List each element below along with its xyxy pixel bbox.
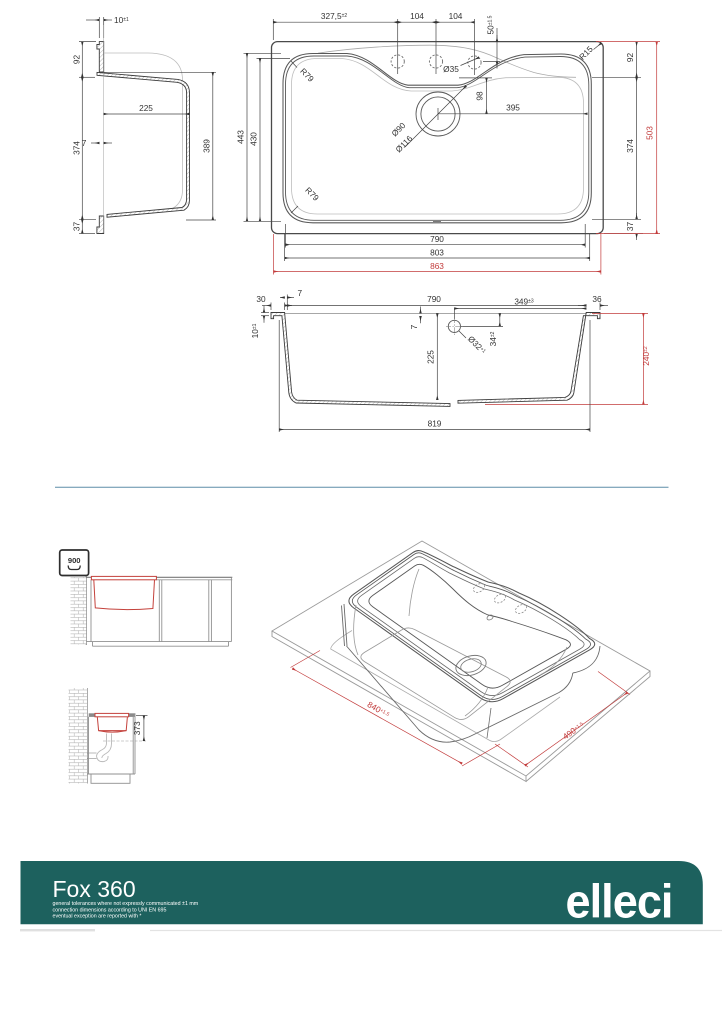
svg-text:37: 37 — [625, 222, 635, 232]
svg-text:503: 503 — [645, 126, 655, 140]
svg-text:443: 443 — [236, 130, 246, 144]
svg-text:225: 225 — [139, 103, 153, 113]
svg-text:373: 373 — [132, 721, 142, 735]
svg-text:7: 7 — [82, 138, 87, 148]
svg-text:790: 790 — [427, 294, 441, 304]
svg-text:36: 36 — [592, 294, 602, 304]
svg-text:92: 92 — [625, 53, 635, 63]
svg-text:104: 104 — [410, 11, 424, 21]
svg-text:790: 790 — [430, 234, 444, 244]
svg-text:7: 7 — [409, 324, 419, 329]
svg-text:389: 389 — [202, 139, 212, 153]
svg-text:803: 803 — [430, 247, 444, 257]
svg-text:92: 92 — [72, 55, 82, 65]
svg-text:7: 7 — [298, 288, 303, 298]
svg-text:Fox 360: Fox 360 — [53, 876, 136, 902]
svg-text:225: 225 — [426, 350, 436, 364]
svg-text:eventual exception are reporte: eventual exception are reported with * — [53, 914, 142, 920]
svg-text:104: 104 — [449, 11, 463, 21]
svg-text:819: 819 — [428, 419, 442, 429]
svg-text:900: 900 — [68, 556, 81, 565]
svg-text:30: 30 — [256, 294, 266, 304]
svg-text:430: 430 — [249, 132, 259, 146]
svg-text:374: 374 — [72, 141, 82, 155]
svg-text:general tolerances where not e: general tolerances where not expressly c… — [53, 901, 199, 907]
svg-text:98: 98 — [475, 91, 485, 101]
svg-text:Ø35: Ø35 — [443, 64, 459, 74]
svg-text:connection dimensions accordin: connection dimensions according to UNI E… — [53, 907, 167, 913]
svg-text:395: 395 — [506, 103, 520, 113]
svg-text:374: 374 — [625, 139, 635, 153]
svg-text:863: 863 — [430, 261, 444, 271]
svg-text:elleci: elleci — [566, 875, 673, 928]
svg-text:37: 37 — [72, 222, 82, 232]
